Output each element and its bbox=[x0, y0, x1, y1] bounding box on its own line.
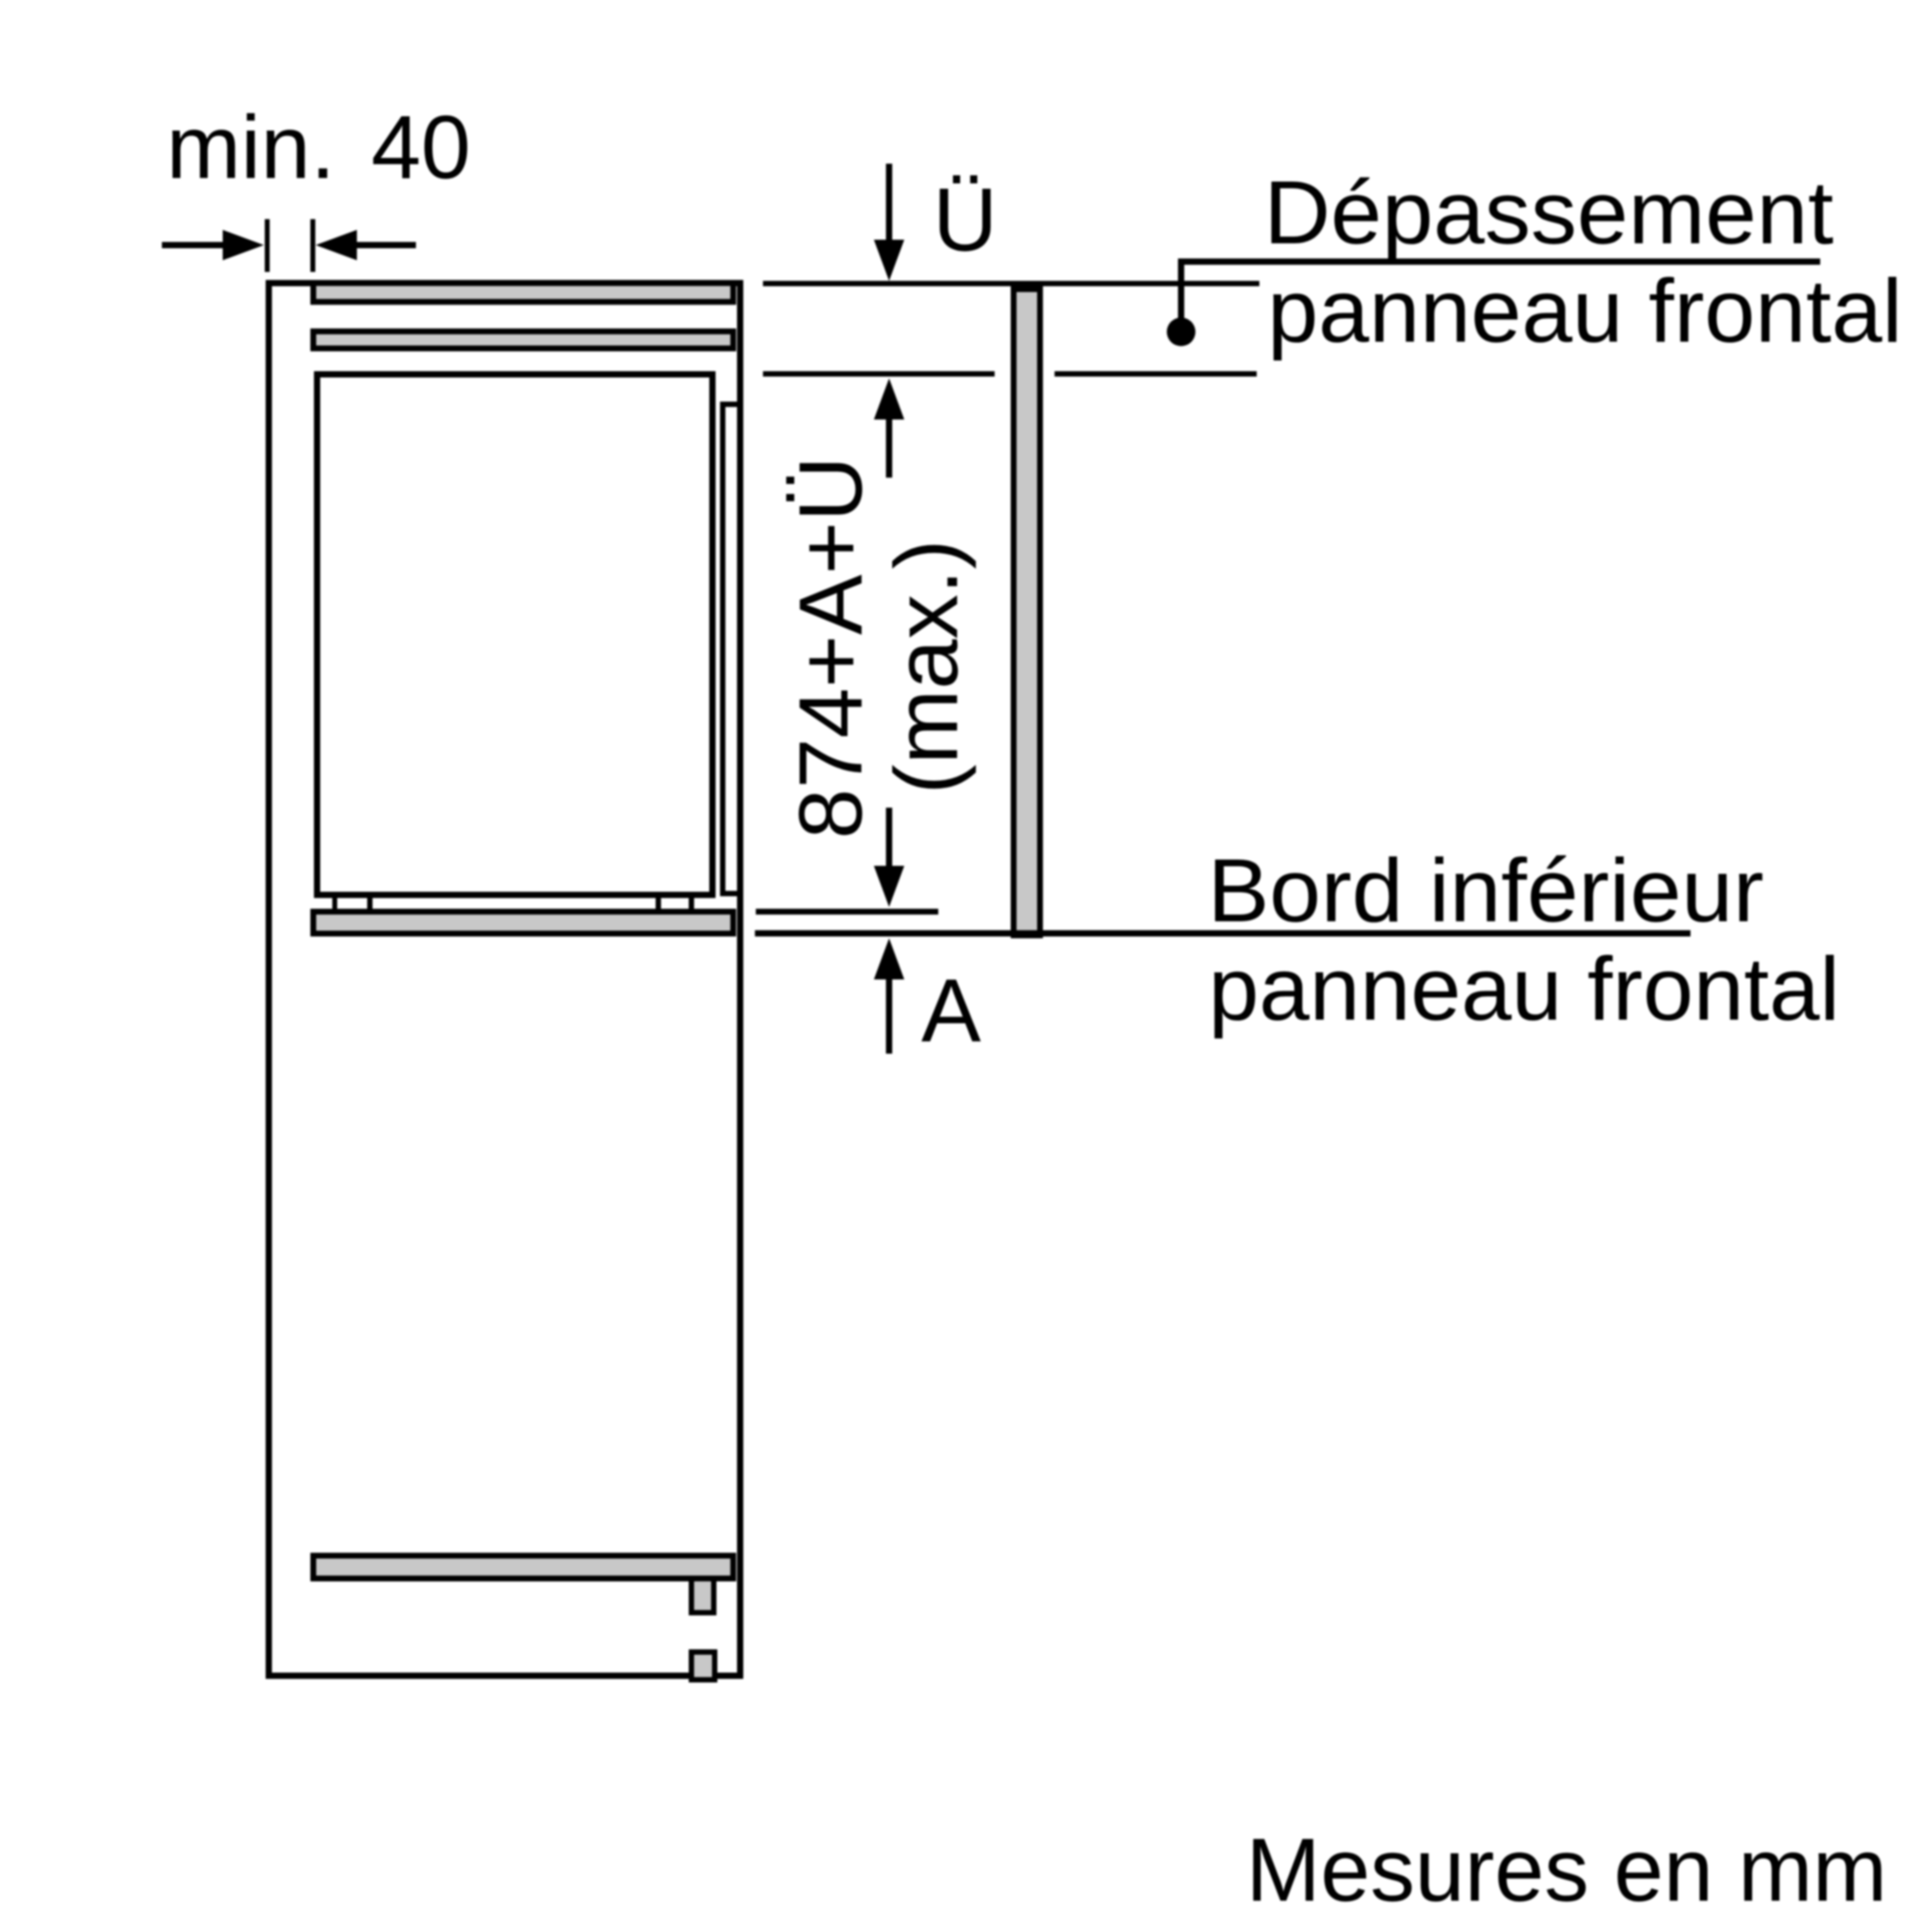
svg-text:(max.): (max.) bbox=[877, 539, 977, 794]
svg-text:A: A bbox=[921, 961, 981, 1061]
svg-text:Ü: Ü bbox=[933, 170, 997, 270]
svg-text:Mesures en mm: Mesures en mm bbox=[1246, 1820, 1887, 1920]
svg-text:panneau frontal: panneau frontal bbox=[1208, 939, 1840, 1039]
svg-text:874+A+Ü: 874+A+Ü bbox=[781, 456, 881, 839]
svg-text:panneau frontal: panneau frontal bbox=[1267, 261, 1902, 361]
svg-text:Dépassement: Dépassement bbox=[1264, 163, 1834, 263]
svg-text:min.: min. bbox=[166, 97, 335, 198]
svg-text:40: 40 bbox=[371, 97, 470, 198]
svg-text:Bord inférieur: Bord inférieur bbox=[1207, 841, 1764, 941]
